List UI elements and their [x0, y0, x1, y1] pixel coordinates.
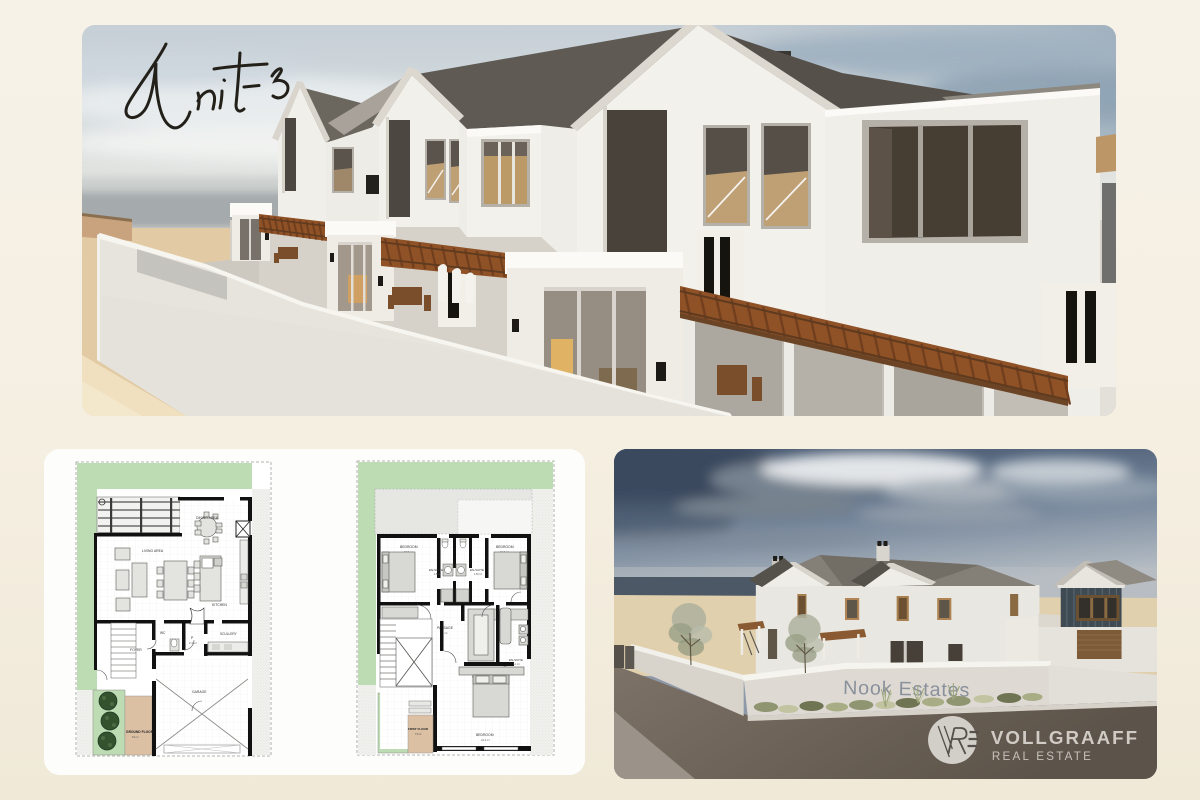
svg-text:24.2 m²: 24.2 m² — [481, 738, 490, 742]
svg-text:VOLLGRAAFF: VOLLGRAAFF — [991, 727, 1139, 748]
svg-text:EN-SUITE: EN-SUITE — [470, 568, 484, 572]
svg-text:4.50 m²: 4.50 m² — [474, 573, 482, 576]
svg-text:4.5 m²: 4.5 m² — [434, 573, 441, 576]
svg-text:EN-SUITE: EN-SUITE — [509, 658, 523, 662]
svg-text:LIVING AREA: LIVING AREA — [142, 549, 164, 553]
svg-text:EN-SUITE: EN-SUITE — [429, 568, 443, 572]
svg-text:71 m²: 71 m² — [415, 733, 422, 736]
svg-text:BEDROOM: BEDROOM — [476, 733, 494, 737]
svg-text:KITCHEN: KITCHEN — [212, 603, 227, 607]
svg-text:64 m²: 64 m² — [132, 735, 139, 739]
svg-text:FOYER: FOYER — [130, 648, 142, 652]
svg-text:PASSAGE: PASSAGE — [437, 626, 454, 630]
svg-text:SCULLERY: SCULLERY — [220, 632, 238, 636]
svg-text:WC: WC — [160, 631, 166, 635]
svg-text:BEDROOM: BEDROOM — [496, 545, 514, 549]
svg-text:DINING AREA: DINING AREA — [196, 516, 219, 520]
svg-text:FIRST FLOOR: FIRST FLOOR — [408, 727, 429, 731]
svg-text:GROUND FLOOR: GROUND FLOOR — [126, 730, 154, 734]
svg-text:GARAGE: GARAGE — [192, 690, 207, 694]
svg-text:REAL ESTATE: REAL ESTATE — [992, 751, 1093, 763]
svg-text:BEDROOM: BEDROOM — [400, 545, 418, 549]
svg-text:6.1 m²: 6.1 m² — [513, 663, 520, 666]
